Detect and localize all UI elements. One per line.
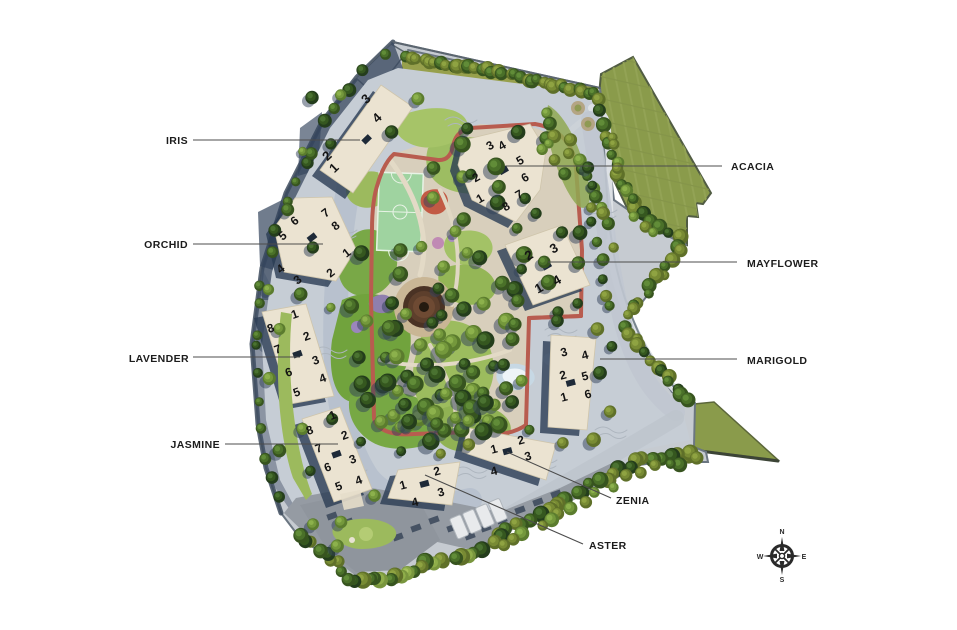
svg-text:W: W: [757, 554, 764, 561]
svg-text:ORCHID: ORCHID: [144, 239, 188, 251]
svg-text:E: E: [802, 554, 807, 561]
svg-text:MARIGOLD: MARIGOLD: [747, 355, 807, 367]
svg-text:ASTER: ASTER: [589, 540, 627, 552]
svg-text:ZENIA: ZENIA: [616, 495, 650, 507]
svg-text:ACACIA: ACACIA: [731, 161, 774, 173]
svg-text:S: S: [780, 577, 785, 584]
svg-text:MAYFLOWER: MAYFLOWER: [747, 258, 818, 270]
svg-text:LAVENDER: LAVENDER: [129, 353, 189, 365]
svg-text:N: N: [779, 529, 784, 536]
svg-text:IRIS: IRIS: [166, 135, 188, 147]
svg-text:JASMINE: JASMINE: [171, 439, 220, 451]
